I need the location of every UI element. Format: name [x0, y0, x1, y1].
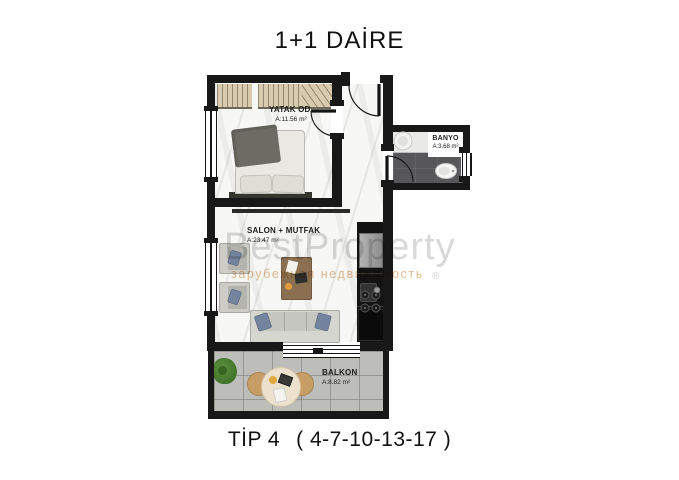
plan-unit-numbers: ( 4-7-10-13-17 ) [296, 428, 451, 451]
door-jamb [381, 180, 394, 187]
bed-pillow-right [272, 174, 305, 193]
balcony-plant [213, 358, 237, 384]
window-jamb [459, 176, 470, 182]
window-jamb [204, 311, 218, 316]
entrance-door-gap [350, 74, 380, 84]
vanity-counter [393, 132, 428, 153]
table-laptop [294, 272, 307, 284]
bed-pillow-left [240, 174, 273, 193]
sofa-pillow-right [314, 313, 331, 332]
counter-line [357, 306, 383, 307]
wall [383, 75, 393, 150]
wardrobe-left [217, 84, 252, 109]
floor-plan-page: 1+1 DAİRE [0, 0, 679, 480]
plan-caption: TİP 4( 4-7-10-13-17 ) [0, 428, 679, 452]
kitchen-sink [360, 283, 377, 302]
bed-blanket [231, 124, 281, 167]
table-bowl [285, 283, 292, 290]
stove [358, 309, 384, 341]
balcony-label: BALKON A:8.82 m² [322, 368, 357, 386]
table-book [278, 373, 294, 387]
bedroom-label: YATAK OD. A:11.56 m² [262, 105, 320, 123]
table-papers [286, 260, 299, 274]
counter-line [357, 273, 383, 274]
sofa-cushion-divider [306, 312, 307, 331]
armchair-top [219, 243, 250, 274]
dining-table [281, 257, 312, 300]
wall [383, 183, 393, 350]
balcony-table [261, 367, 301, 407]
sliding-door-handle [313, 348, 323, 353]
window-jamb [204, 177, 218, 182]
door-jamb [330, 133, 344, 139]
bathroom-door-gap [383, 151, 393, 180]
plant-shade [218, 366, 227, 375]
kitchen-counter [357, 222, 383, 342]
fridge [359, 233, 383, 268]
table-card [273, 387, 288, 403]
bathroom-window [461, 153, 472, 176]
door-jamb [381, 144, 394, 151]
bedroom-door-gap [331, 106, 343, 133]
wall [332, 135, 342, 203]
living-kitchen-label: SALON + MUTFAK A:23.47 m² [247, 226, 320, 244]
wall-bathroom [383, 125, 470, 132]
tv-unit [232, 209, 350, 213]
wall-balcony-right [383, 350, 389, 418]
bedroom-window [204, 111, 218, 177]
wall-balcony-bottom [208, 411, 389, 419]
sofa-cushion-divider [284, 312, 285, 331]
wall-bathroom [383, 183, 470, 190]
armchair-bottom [219, 282, 250, 313]
plan-type-label: TİP 4 [228, 428, 280, 451]
living-room-window [204, 243, 218, 311]
wall-balcony-left [208, 350, 214, 418]
wall [207, 75, 347, 83]
wall [207, 75, 215, 110]
wall-bedroom-divider [207, 198, 342, 207]
bathroom-label: BANYO A:3.68 m² [428, 135, 463, 152]
wall [207, 178, 215, 242]
table-fruit [269, 376, 277, 384]
page-title: 1+1 DAİRE [0, 27, 679, 55]
registered-trademark-icon: ® [432, 271, 439, 282]
wall-balcony-top-left [207, 342, 283, 351]
balcony-sliding-door [283, 345, 360, 358]
sofa [250, 310, 340, 343]
door-jamb [341, 72, 350, 86]
